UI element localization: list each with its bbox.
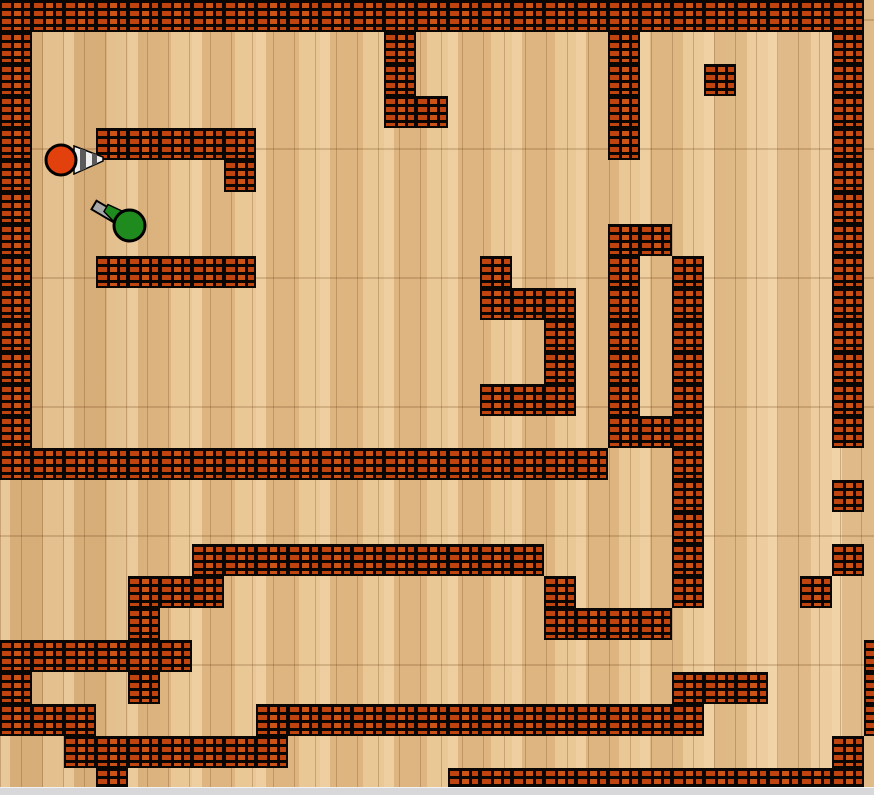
tank-layer <box>0 0 874 795</box>
red-tank[interactable] <box>46 145 103 175</box>
red-tank-body[interactable] <box>46 145 76 175</box>
game-area[interactable] <box>0 0 874 795</box>
window-edge-strip <box>0 787 874 795</box>
green-tank-body[interactable] <box>114 210 145 241</box>
green-tank[interactable] <box>92 201 146 241</box>
red-tank-barrel-stripe <box>80 148 86 171</box>
red-tank-barrel-stripe <box>92 153 97 166</box>
red-tank-barrel-cone <box>74 146 103 174</box>
